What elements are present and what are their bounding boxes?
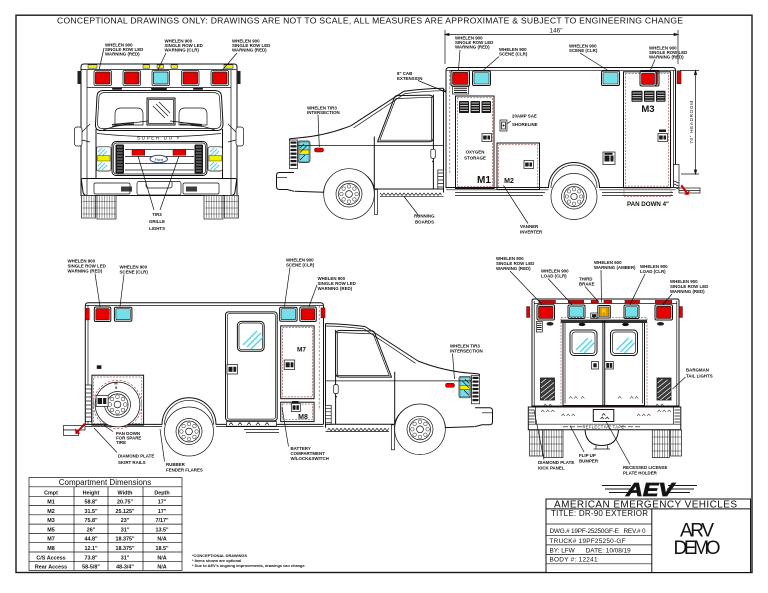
svg-text:DATE: 10/08/19: DATE: 10/08/19 [586, 548, 631, 555]
svg-text:Depth: Depth [154, 490, 169, 496]
svg-text:31": 31" [121, 555, 130, 561]
svg-text:Compartment Dimensions: Compartment Dimensions [59, 478, 151, 487]
svg-text:SCENE (CLR): SCENE (CLR) [499, 52, 528, 57]
svg-text:WARNING (RED): WARNING (RED) [455, 45, 490, 50]
svg-text:M3: M3 [641, 104, 654, 115]
svg-text:TITLE: DR-90 EXTERIOR: TITLE: DR-90 EXTERIOR [551, 509, 648, 518]
svg-text:DEMO: DEMO [674, 538, 721, 559]
svg-text:REFLECTIVE TAPE: REFLECTIVE TAPE [582, 424, 624, 429]
svg-text:M2: M2 [504, 178, 514, 185]
svg-text:44.8": 44.8" [84, 537, 97, 543]
svg-text:STORAGE: STORAGE [464, 156, 486, 161]
svg-text:SCENE (CLR): SCENE (CLR) [120, 270, 149, 275]
svg-text:SHORELINE: SHORELINE [512, 122, 538, 127]
svg-text:M8: M8 [298, 414, 308, 421]
svg-text:BY: LFW: BY: LFW [550, 548, 576, 555]
svg-text:DIAMOND PLATE: DIAMOND PLATE [118, 454, 154, 459]
svg-text:WARNING (RED): WARNING (RED) [649, 55, 684, 60]
svg-text:INTERSECTION: INTERSECTION [450, 349, 483, 354]
svg-text:SKIRT RAILS: SKIRT RAILS [118, 460, 146, 465]
svg-text:TIR3: TIR3 [152, 212, 162, 217]
svg-text:17": 17" [158, 500, 167, 506]
svg-text:WARNING (RED): WARNING (RED) [105, 52, 140, 57]
svg-text:48-3/4": 48-3/4" [116, 565, 134, 571]
svg-text:LIGHTS: LIGHTS [149, 226, 165, 231]
svg-text:WARNING (RED): WARNING (RED) [232, 48, 267, 53]
svg-text:12.1": 12.1" [84, 546, 97, 552]
svg-text:INTERSECTION: INTERSECTION [307, 110, 340, 115]
svg-text:INVERTER: INVERTER [520, 230, 543, 235]
svg-text:23": 23" [121, 518, 130, 524]
svg-text:M3: M3 [47, 518, 55, 524]
svg-text:RECESSED LICENSE: RECESSED LICENSE [623, 465, 667, 470]
svg-text:17": 17" [158, 509, 167, 515]
svg-text:N/A: N/A [157, 555, 166, 561]
svg-text:73.8": 73.8" [84, 555, 97, 561]
svg-text:75.8": 75.8" [84, 518, 97, 524]
svg-text:WARNING (RED): WARNING (RED) [68, 269, 103, 274]
svg-text:PLATE HOLDER: PLATE HOLDER [623, 471, 658, 476]
svg-text:20.75": 20.75" [117, 500, 133, 506]
svg-text:M8: M8 [47, 546, 55, 552]
svg-text:LOAD (CLR): LOAD (CLR) [541, 274, 567, 279]
svg-text:AEV: AEV [625, 480, 677, 500]
svg-text:SUPER DU Y: SUPER DU Y [137, 136, 181, 141]
svg-text:BRAKE: BRAKE [579, 282, 595, 287]
svg-text:25.125": 25.125" [115, 509, 134, 515]
svg-text:M7: M7 [297, 347, 306, 354]
svg-text:BUMPER: BUMPER [579, 459, 599, 464]
svg-text:26": 26" [87, 527, 96, 533]
svg-text:WARNING (RED): WARNING (RED) [670, 289, 705, 294]
svg-text:KICK PANEL: KICK PANEL [538, 466, 565, 471]
svg-text:M1: M1 [477, 175, 491, 186]
svg-text:58.8": 58.8" [84, 500, 97, 506]
svg-text:Rear Access: Rear Access [35, 565, 67, 571]
svg-text:LOAD (CLR): LOAD (CLR) [640, 269, 666, 274]
svg-text:31.5": 31.5" [84, 509, 97, 515]
svg-text:W/LOCK&SWITCH: W/LOCK&SWITCH [291, 456, 329, 461]
svg-text:M1: M1 [47, 500, 55, 506]
svg-text:TRUCK# 19PF25250-GF: TRUCK# 19PF25250-GF [550, 538, 626, 545]
svg-text:OXYGEN: OXYGEN [466, 150, 485, 155]
svg-text:M5: M5 [47, 527, 55, 533]
svg-text:C/S Access: C/S Access [36, 555, 65, 561]
svg-text:N/A: N/A [157, 537, 166, 543]
svg-text:RUNNING: RUNNING [414, 214, 435, 219]
svg-text:CONCEPTIONAL DRAWINGS ONLY: DR: CONCEPTIONAL DRAWINGS ONLY: DRAWINGS ARE… [57, 16, 683, 26]
svg-text:M7: M7 [47, 537, 55, 543]
svg-text:FENDER FLARES: FENDER FLARES [166, 468, 203, 473]
svg-text:Width: Width [118, 490, 133, 496]
svg-text:TIRE: TIRE [116, 440, 126, 445]
svg-text:18.5": 18.5" [155, 546, 168, 552]
svg-text:N/A: N/A [157, 565, 166, 571]
svg-text:13.5": 13.5" [155, 527, 168, 533]
svg-text:Height: Height [83, 490, 100, 496]
svg-text:146": 146" [550, 28, 563, 35]
svg-text:31": 31" [121, 527, 130, 533]
svg-text:SCENE (CLR): SCENE (CLR) [286, 263, 315, 268]
svg-text:WARNING (RED): WARNING (RED) [318, 286, 353, 291]
svg-text:WARNING (AMBER): WARNING (AMBER) [594, 265, 636, 270]
svg-text:GRILLE: GRILLE [149, 219, 165, 224]
svg-text:RUBBER: RUBBER [166, 462, 186, 467]
svg-text:5: 5 [115, 386, 117, 390]
svg-text:* Due to AEV's ongoing improve: * Due to AEV's ongoing improvements, dra… [192, 563, 306, 568]
svg-text:BOARDS: BOARDS [415, 220, 434, 225]
svg-text:18.375": 18.375" [115, 537, 134, 543]
svg-text:18.375": 18.375" [115, 546, 134, 552]
svg-text:BARGMAN: BARGMAN [686, 368, 709, 373]
svg-text:7/17": 7/17" [155, 518, 168, 524]
svg-text:SCENE (CLR): SCENE (CLR) [569, 48, 598, 53]
svg-text:Ford: Ford [155, 157, 164, 162]
svg-text:DWG.# 19PF-25250GF-E REV.# 0: DWG.# 19PF-25250GF-E REV.# 0 [550, 528, 646, 535]
svg-text:BODY #: 12241: BODY #: 12241 [550, 557, 598, 564]
svg-text:TAIL LIGHTS: TAIL LIGHTS [686, 374, 713, 379]
svg-text:WARNING (RED): WARNING (RED) [496, 266, 531, 271]
svg-text:DIAMOND PLATE: DIAMOND PLATE [538, 460, 574, 465]
svg-text:Cmpt: Cmpt [44, 490, 58, 496]
svg-text:PAN DOWN 4": PAN DOWN 4" [627, 201, 669, 208]
svg-text:58-5/8": 58-5/8" [82, 565, 100, 571]
svg-text:WARNING (CLR): WARNING (CLR) [165, 48, 200, 53]
svg-text:70" HEADROOM: 70" HEADROOM [689, 100, 694, 143]
svg-text:M2: M2 [47, 509, 55, 515]
svg-text:M: M [114, 382, 117, 386]
svg-text:20AMP SAE: 20AMP SAE [512, 114, 537, 119]
svg-text:VANNER: VANNER [520, 224, 539, 229]
svg-text:EXTENSION: EXTENSION [397, 76, 422, 81]
svg-text:FLIP UP: FLIP UP [579, 453, 596, 458]
